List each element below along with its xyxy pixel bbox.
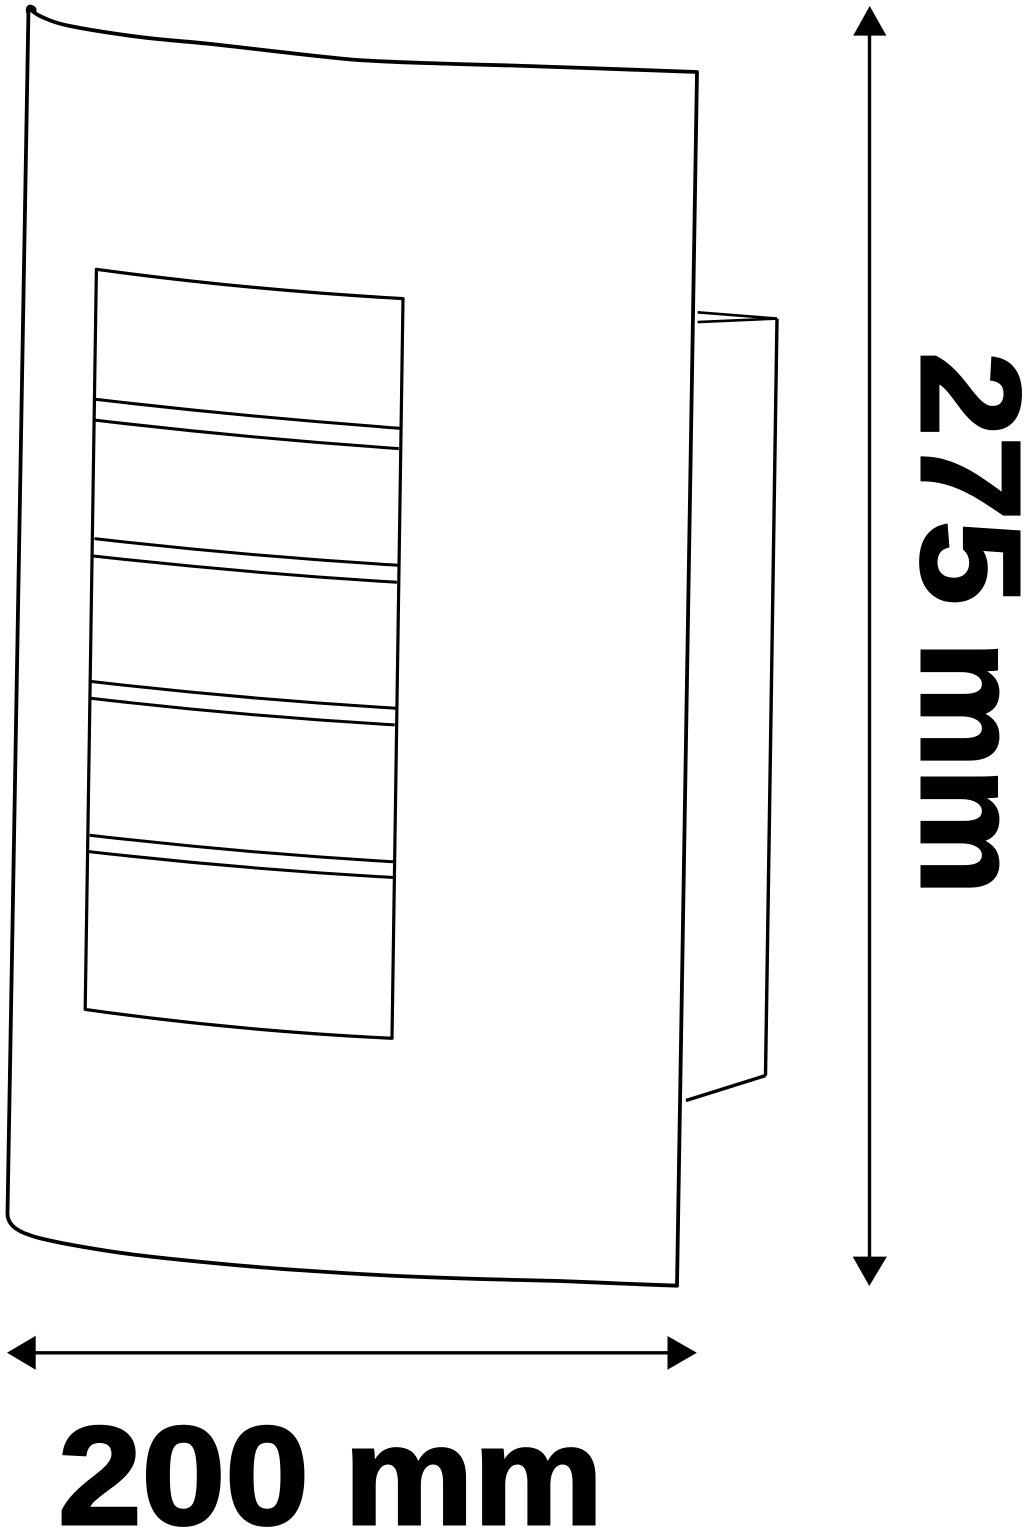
svg-text:200: 200 <box>58 1397 309 1529</box>
svg-text:mm: mm <box>892 641 1024 895</box>
svg-text:275: 275 <box>892 352 1024 605</box>
svg-text:mm: mm <box>344 1397 603 1529</box>
